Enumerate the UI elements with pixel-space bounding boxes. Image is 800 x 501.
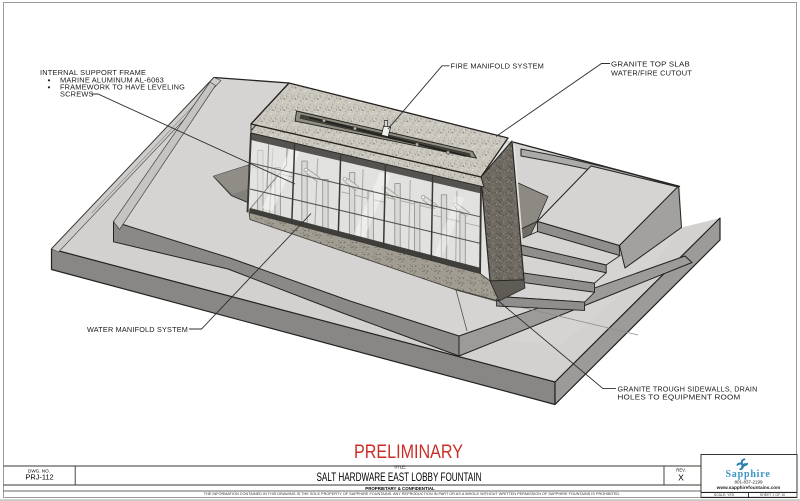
svg-text:PROPRIETARY & CONFIDENTIAL: PROPRIETARY & CONFIDENTIAL <box>365 486 435 491</box>
svg-text:SALT HARDWARE EAST LOBBY FOUNT: SALT HARDWARE EAST LOBBY FOUNTAIN <box>317 470 482 484</box>
svg-text:SCALE: YES: SCALE: YES <box>714 493 735 497</box>
svg-text:X: X <box>678 473 684 483</box>
svg-text:Sapphire: Sapphire <box>725 469 770 480</box>
svg-text:PRELIMINARY: PRELIMINARY <box>354 442 463 463</box>
svg-text:FIRE MANIFOLD SYSTEM: FIRE MANIFOLD SYSTEM <box>451 62 545 71</box>
svg-text:HOLES TO EQUIPMENT ROOM: HOLES TO EQUIPMENT ROOM <box>618 392 741 401</box>
svg-text:SHEET 2 OF 10: SHEET 2 OF 10 <box>760 493 785 497</box>
svg-text:SCREWS: SCREWS <box>60 90 94 99</box>
svg-text:WATER/FIRE CUTOUT: WATER/FIRE CUTOUT <box>611 68 692 77</box>
svg-text:THE INFORMATION CONTAINED IN T: THE INFORMATION CONTAINED IN THIS DRAWIN… <box>204 492 620 496</box>
svg-text:GRANITE TOP SLAB: GRANITE TOP SLAB <box>611 60 690 69</box>
svg-text:WATER MANIFOLD SYSTEM: WATER MANIFOLD SYSTEM <box>87 325 188 334</box>
svg-text:www.sapphirefountains.com: www.sapphirefountains.com <box>716 485 781 490</box>
svg-text:PRJ-112: PRJ-112 <box>25 473 53 482</box>
